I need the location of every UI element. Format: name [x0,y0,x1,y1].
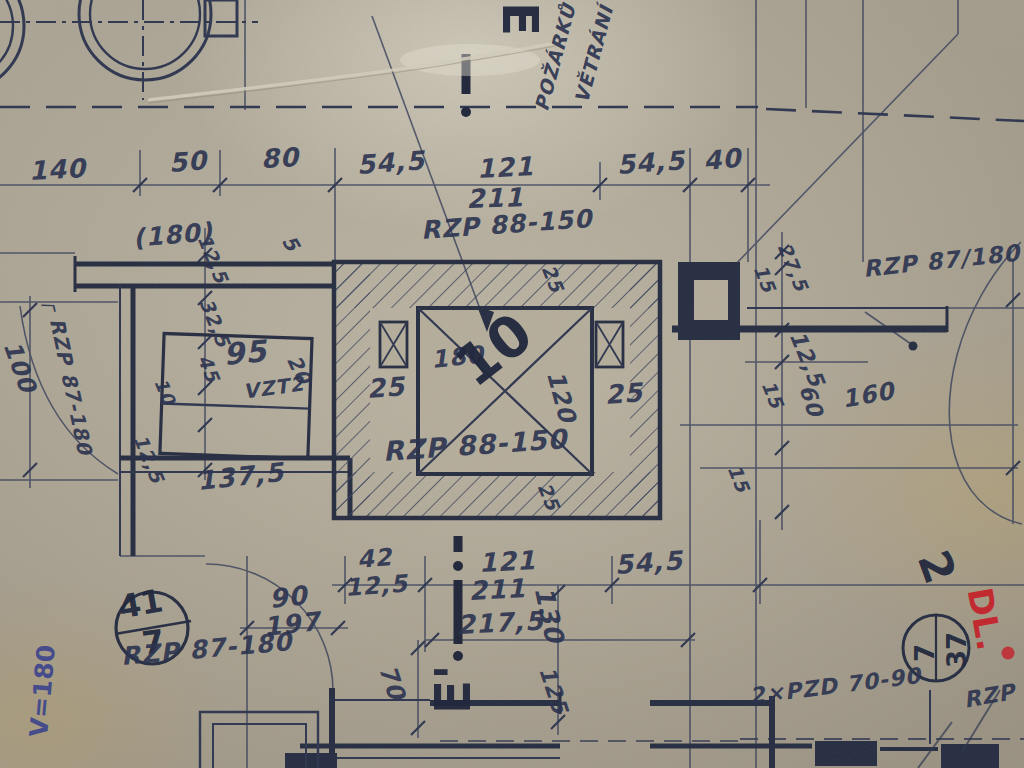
blueprint-photo: EVĚTRÁNÍPOŽÁRKŮ140508054,5121211RZP 88-1… [0,0,1024,768]
plan-linework [0,0,1024,768]
paper-grain-overlay [0,0,1024,768]
